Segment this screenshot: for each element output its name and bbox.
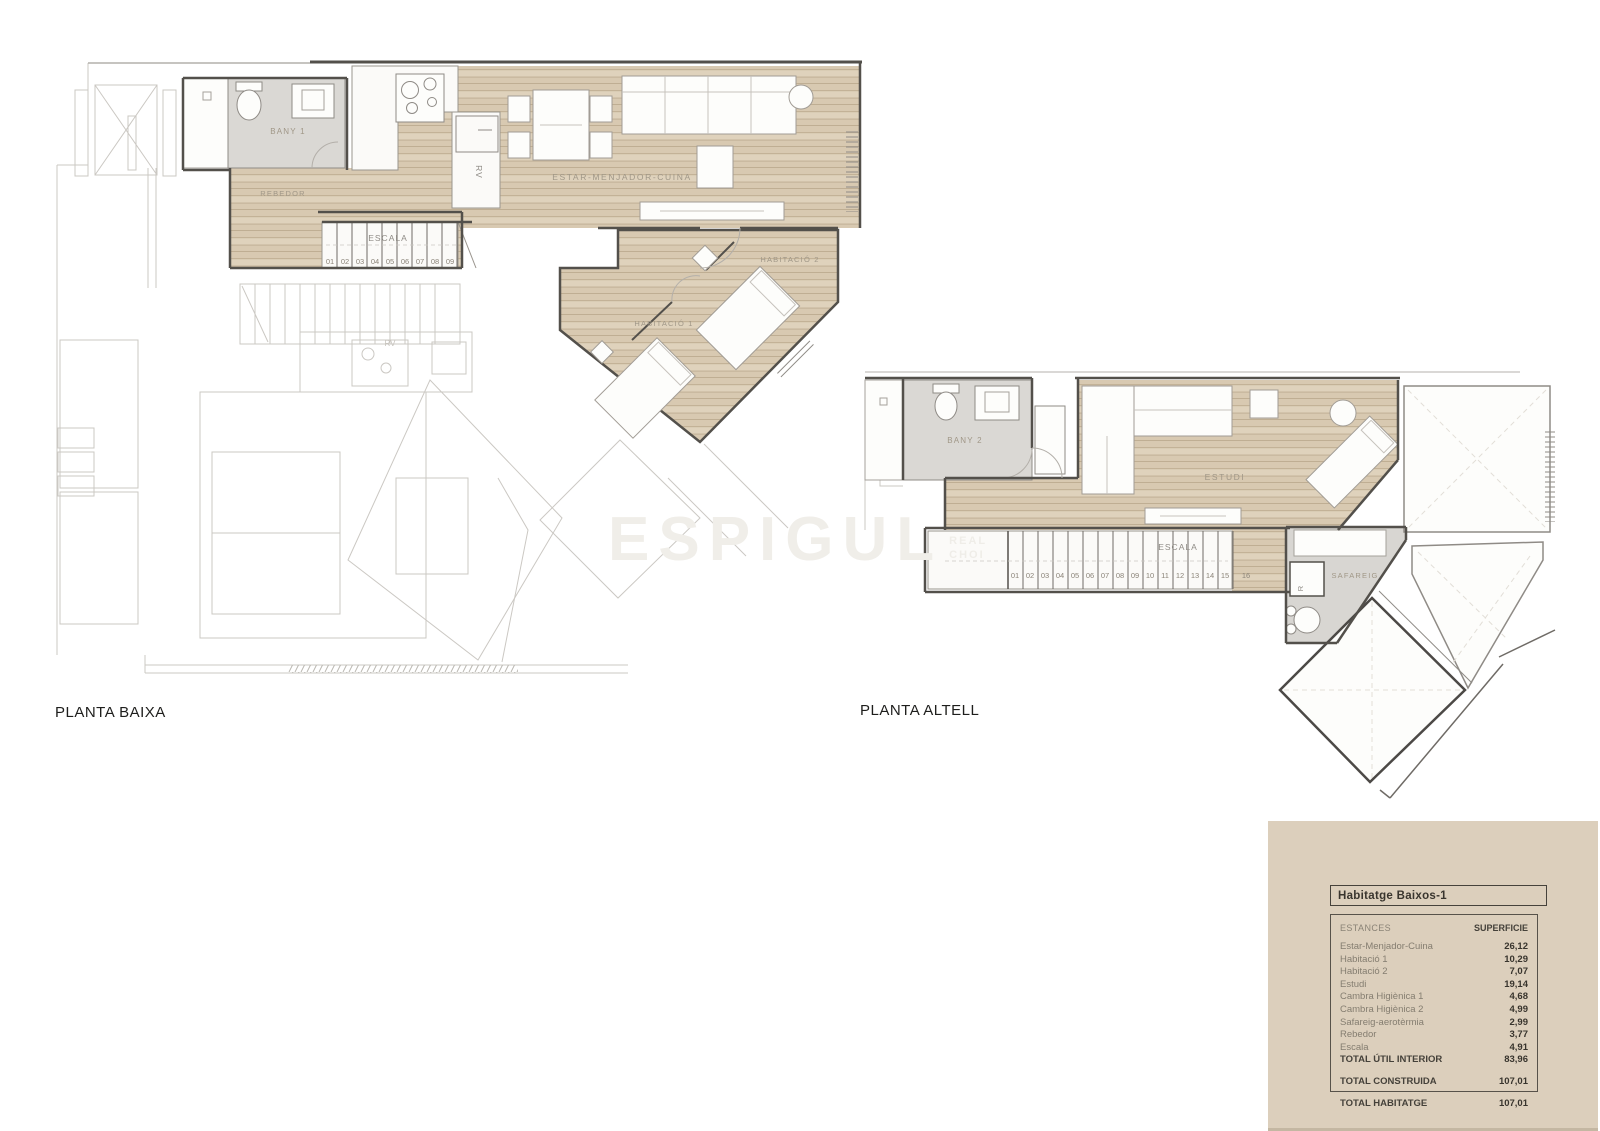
stair-num: 02 [341,257,349,266]
r-label: R [1296,585,1305,591]
bany1-label: BANY 1 [270,127,306,136]
safareig-label: SAFAREIG [1331,571,1378,580]
floorplan-sheet: RV [0,0,1600,1131]
table-row: Estar-Menjador-Cuina26,12 [1340,941,1528,954]
table-row: Estudi19,14 [1340,979,1528,992]
col-estances: ESTANCES [1340,923,1391,933]
table-row: Cambra Higiènica 14,68 [1340,991,1528,1004]
stove-icon [396,74,444,122]
bany1-room [183,78,345,168]
stair-num: 15 [1221,571,1229,580]
legend-header: ESTANCES SUPERFICIE [1340,923,1528,933]
stair-num: 03 [1041,571,1049,580]
hab2-label: HABITACIÓ 2 [760,255,819,264]
total-habitatge-row: TOTAL HABITATGE107,01 [1340,1098,1528,1111]
toilet-icon [933,384,959,420]
escala-altell-label: ESCALA [1158,542,1198,552]
total-construida-row: TOTAL CONSTRUIDA107,01 [1340,1076,1528,1089]
stair-num: 09 [446,257,454,266]
plan-baixa-title: PLANTA BAIXA [55,704,166,721]
legend-table: ESTANCES SUPERFICIE Estar-Menjador-Cuina… [1330,914,1538,1092]
legend-title: Habitatge Baixos-1 [1330,885,1547,906]
table-row: Escala4,91 [1340,1042,1528,1055]
stair-num: 12 [1176,571,1184,580]
stair-num: 08 [431,257,439,266]
tv-console [640,202,784,220]
plan-altell-title: PLANTA ALTELL [860,702,979,719]
table-row: Habitació 27,07 [1340,966,1528,979]
total-util-row: TOTAL ÚTIL INTERIOR83,96 [1340,1054,1528,1067]
estudi-label: ESTUDI [1205,472,1246,482]
rebedor-label: REBEDOR [260,189,306,198]
stair-num: 04 [1056,571,1064,580]
rv-label: RV [474,165,484,179]
stair-num: 16 [1242,571,1250,580]
toilet-icon [236,82,262,120]
escala-baixa-label: ESCALA [368,233,408,243]
stair-num: 08 [1116,571,1124,580]
bany2-room [865,380,1032,480]
stair-num: 05 [386,257,394,266]
sink-icon [975,386,1019,420]
table-row: Rebedor3,77 [1340,1029,1528,1042]
side-table [697,146,733,188]
stair-num: 06 [401,257,409,266]
stair-num: 06 [1086,571,1094,580]
stair-num: 14 [1206,571,1214,580]
closet [1035,406,1065,474]
col-superficie: SUPERFICIE [1474,923,1528,933]
stair-num: 10 [1146,571,1154,580]
legend-panel: Habitatge Baixos-1 ESTANCES SUPERFICIE E… [1268,821,1598,1131]
round-table-icon [789,85,813,109]
hab1-label: HABITACIÓ 1 [634,319,693,328]
table-row: Cambra Higiènica 24,99 [1340,1004,1528,1017]
stair-num: 02 [1026,571,1034,580]
stair-num: 13 [1191,571,1199,580]
stairs-baixa: ESCALA 01 02 03 04 05 06 07 08 09 [322,222,476,268]
stair-num: 03 [356,257,364,266]
context-rv-label: RV [385,339,397,348]
stair-num: 01 [326,257,334,266]
plan-altell: ESCALA 01 02 03 04 05 06 07 08 09 10 11 … [865,372,1555,798]
stair-num: 11 [1161,571,1169,580]
estar-label: ESTAR-MENJADOR-CUINA [552,172,692,182]
stair-num: 07 [416,257,424,266]
stair-num: 09 [1131,571,1139,580]
table-row: Habitació 110,29 [1340,954,1528,967]
stair-num: 05 [1071,571,1079,580]
stair-num: 04 [371,257,379,266]
sofa [622,76,796,134]
table-row: Safareig-aerotèrmia2,99 [1340,1017,1528,1030]
stairs-altell: ESCALA 01 02 03 04 05 06 07 08 09 10 11 … [928,531,1250,589]
window-hatch [846,128,858,212]
bany2-label: BANY 2 [947,436,983,445]
sink-unit [452,112,500,208]
stair-num: 07 [1101,571,1109,580]
sink-icon [292,84,334,118]
window-hatch [1545,428,1555,522]
stair-num: 01 [1011,571,1019,580]
plan-baixa: RV [57,62,862,673]
